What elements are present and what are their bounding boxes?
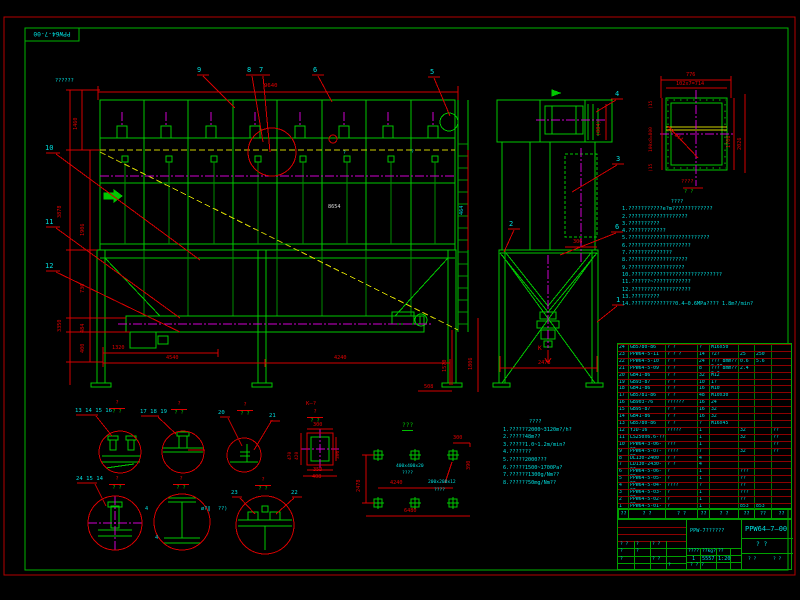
parts-header-cell: ? ? <box>709 510 738 518</box>
part-seq: 15 <box>618 407 628 413</box>
part-material: 32 <box>709 407 738 413</box>
notes-bottom-lines: 1.??????2000~3120m?/h?2.?????48m??3.????… <box>503 427 633 488</box>
part-material: M10x30 <box>709 393 738 399</box>
spec-line: 2.?????48m?? <box>503 434 633 442</box>
part-total-weight <box>754 449 771 455</box>
part-name: ? ? <box>665 414 697 420</box>
detail-label-13141516: 13 14 15 16 <box>75 409 112 415</box>
dim-1460: 1460 <box>74 118 79 131</box>
parts-list-row: 24 GB5780-86 ? ? ? M16x50 <box>618 344 791 351</box>
part-qty: 1 <box>697 476 709 482</box>
part-name: ?????? <box>665 400 697 406</box>
part-code: GB41-86 <box>628 414 665 420</box>
balloon-9: 9 <box>197 67 201 74</box>
part-code: PPW64-5-06-00 <box>628 469 665 475</box>
part-code: GB5780-86 <box>628 421 665 427</box>
dim-1806: 1806 <box>469 358 474 371</box>
note-line: 5.?????????????????????????? <box>622 235 792 242</box>
rev-cell: ? <box>620 558 623 563</box>
right-cell: ? ? <box>773 558 781 563</box>
dim-464: 464 <box>460 206 465 215</box>
foundation-title: ??? <box>402 423 413 431</box>
part-remark: ?? <box>771 442 791 448</box>
part-remark <box>771 421 791 427</box>
part-total-weight <box>754 456 771 462</box>
balloon-2: 2 <box>509 221 513 228</box>
parts-list-row: 21 PPW64-5-09 ? ? 8 ??? 8mm??0.3 2.4 <box>618 365 791 372</box>
part-material <box>709 435 738 441</box>
part-unit-weight <box>738 373 754 379</box>
dim-fp-6480: 6480 <box>404 509 417 514</box>
note-line: 11.??????~???????????? <box>622 279 792 286</box>
part-material: ?2? <box>709 352 738 358</box>
dim-508: 508 <box>424 385 433 390</box>
note-line: 14.??????????????0.4—0.6MPa???? 1.8m?/mi… <box>622 301 792 308</box>
detail-label-23: 23 <box>231 491 238 497</box>
parts-header-cell: ? ? <box>628 510 665 518</box>
balloon-6b: 6 <box>615 224 619 231</box>
part-name: ???? <box>665 483 697 489</box>
part-qty: 48 <box>697 393 709 399</box>
part-total-weight <box>754 386 771 392</box>
section-k-label: K—? <box>306 402 316 408</box>
part-code: PPW64-5-11 <box>628 352 665 358</box>
sheet-count: 1 <box>692 557 695 562</box>
part-name: ? ? <box>665 421 697 427</box>
part-qty: 10 <box>697 380 709 386</box>
section-mark-1: ?? ? <box>108 401 126 415</box>
parts-list-row: 20 GB41-86 ? ? 32 M12 <box>618 372 791 379</box>
part-remark <box>771 476 791 482</box>
balloon-11: 11 <box>45 219 53 226</box>
part-code: GB903-76 <box>628 400 665 406</box>
section-mark-4: ?? ? <box>108 477 126 491</box>
rev-cell: ? ? <box>620 543 628 548</box>
parts-list-row: 3 PPW64-5-03-00 ? 1 ??? <box>618 489 791 496</box>
part-name: ? ? <box>665 407 697 413</box>
part-seq: 5 <box>618 476 628 482</box>
scale-header: ?? <box>718 550 724 555</box>
balloon-3: 3 <box>616 156 620 163</box>
part-unit-weight <box>738 386 754 392</box>
part-unit-weight: 2.4 <box>738 366 754 372</box>
weld-mark-phi: ø?‖ <box>201 507 210 512</box>
part-name: ???? <box>665 449 697 455</box>
weld-mark-r: ??) <box>218 507 227 512</box>
cad-drawing-canvas: PPW64-7-00 ?????? 9640 1460 3878 3350 19… <box>0 0 800 600</box>
parts-list-row: 9 PPW64-5-07-00 ???? 7 32 ?? <box>618 448 791 455</box>
part-name: ? <box>665 469 697 475</box>
part-code: YJD-16 <box>628 428 665 434</box>
note-line: 1.???????????e?m????????????? <box>622 206 792 213</box>
part-qty: 8 <box>697 366 709 372</box>
part-unit-weight: 32 <box>738 449 754 455</box>
note-line: 3.?????????? <box>622 221 792 228</box>
part-remark <box>771 462 791 468</box>
dim-884: (884) <box>597 120 602 136</box>
part-code: PPW64-5-10 <box>628 359 665 365</box>
parts-list-row: 22 PPW64-5-10 ? ? 24 ??? 8mm??0.38 0.6 5… <box>618 358 791 365</box>
parts-list-row: 23 PPW64-5-11 ? ? ? 14 ?2? 25 250 <box>618 351 791 358</box>
drawing-number: PPW64—7—00 <box>745 526 787 533</box>
part-remark <box>771 366 791 372</box>
part-unit-weight <box>738 414 754 420</box>
dim-776: 776 <box>686 73 695 78</box>
part-seq: 23 <box>618 352 628 358</box>
part-qty: ? <box>697 483 709 489</box>
part-qty: 24 <box>697 359 709 365</box>
part-code: LS250x6.6-?????? <box>628 435 665 441</box>
part-code: DL130-2400 <box>628 456 665 462</box>
note-line: 4.???????????? <box>622 228 792 235</box>
part-qty: 4 <box>697 462 709 468</box>
part-qty: 7 <box>697 449 709 455</box>
part-seq: 12 <box>618 428 628 434</box>
part-total-weight <box>754 490 771 496</box>
part-remark <box>771 380 791 386</box>
part-remark <box>771 345 791 351</box>
part-total-weight <box>754 393 771 399</box>
part-material: 1? <box>709 380 738 386</box>
rev-cell: ? ? <box>652 543 660 548</box>
part-total-weight <box>754 428 771 434</box>
spec-line: 7.??????1300g/Nm?? <box>503 472 633 480</box>
balloon-10: 10 <box>45 145 53 152</box>
balloon-6: 6 <box>313 67 317 74</box>
spec-line: 6.?????1500~1700Pa? <box>503 465 633 473</box>
part-total-weight <box>754 407 771 413</box>
rev-cell: ? <box>636 550 639 555</box>
part-material: M10 <box>709 386 738 392</box>
mark-1: ? <box>343 152 346 157</box>
part-qty: 1 <box>697 428 709 434</box>
part-unit-weight: 0.6 <box>738 359 754 365</box>
part-name <box>665 435 697 441</box>
dim-400: 400 <box>81 344 86 353</box>
part-total-weight <box>754 366 771 372</box>
part-seq: 24 <box>618 345 628 351</box>
part-code: GB41-86 <box>628 373 665 379</box>
note-line: 9.?????????????????? <box>622 265 792 272</box>
part-remark <box>771 497 791 503</box>
rev-cell: ? <box>668 564 671 569</box>
parts-list-row: 14 GB41-86 ? ? 16 32 <box>618 413 791 420</box>
part-seq: 10 <box>618 442 628 448</box>
part-name: ? ? <box>665 456 697 462</box>
part-seq: 11 <box>618 435 628 441</box>
main-top-label: ?????? <box>55 79 74 84</box>
spec-line: 5.?????2000??? <box>503 457 633 465</box>
dim-1570: 1570 <box>443 360 448 373</box>
part-name: ? <box>665 490 697 496</box>
part-remark <box>771 352 791 358</box>
part-material: 24 <box>709 400 738 406</box>
dim-4540: 4540 <box>166 356 179 361</box>
parts-header-cell: ?? <box>738 510 754 518</box>
part-unit-weight: ??? <box>738 469 754 475</box>
section-mark-5: ?? ? <box>172 477 190 491</box>
part-qty: 4 <box>697 456 709 462</box>
part-material <box>709 469 738 475</box>
spec-line: 1.??????2000~3120m?/h? <box>503 427 633 435</box>
part-code: GB5780-86 <box>628 345 665 351</box>
dim-fp-2478: 2478 <box>357 480 362 493</box>
part-material: M16x50 <box>709 345 738 351</box>
part-qty: ? <box>697 421 709 427</box>
part-total-weight: 5.6 <box>754 359 771 365</box>
weld-mark-4: 4 <box>145 507 148 512</box>
section-mark-k: ?? ? <box>306 410 324 424</box>
part-seq: 4 <box>618 483 628 489</box>
part-seq: 2 <box>618 497 628 503</box>
part-code: PPW64-5-02-00 <box>628 497 665 503</box>
part-unit-weight: 25 <box>738 352 754 358</box>
part-name: ? ? <box>665 380 697 386</box>
part-qty: 16 <box>697 386 709 392</box>
dim-8654: 8654 <box>328 205 341 210</box>
rev-cell: ? <box>636 543 639 548</box>
part-seq: 14 <box>618 414 628 420</box>
section-mark-3: ?? ? <box>236 403 254 417</box>
flange-caption-sub: ? ? <box>684 190 693 195</box>
dim-3878: 3878 <box>58 206 63 219</box>
mark-2: ? <box>411 151 414 156</box>
parts-header-cell: ? ? <box>665 510 697 518</box>
balloon-8: 8 <box>247 67 251 74</box>
spec-line: 8.??????50mg/Nm?? <box>503 480 633 488</box>
part-qty: 16 <box>697 407 709 413</box>
part-name: ? <box>665 476 697 482</box>
note-line: 7.?????????????? <box>622 250 792 257</box>
parts-list-row: 17 GB5781-86 ? ? 48 M10x30 <box>618 392 791 399</box>
part-remark <box>771 414 791 420</box>
plate-label-2b: ???? <box>434 489 445 494</box>
dim-ks-306: 306 <box>337 451 342 459</box>
detail-label-171819: 17 18 19 <box>140 410 167 416</box>
dim-100x8: 100x8=800 <box>650 127 655 152</box>
notes-right-lines: 1.???????????e?m?????????????2.?????????… <box>622 206 792 308</box>
part-unit-weight: 32 <box>738 428 754 434</box>
part-material: ??? 8mm??0.3 <box>709 366 738 372</box>
note-line: 8.??????????????????? <box>622 257 792 264</box>
drawing-number-sub: ? ? <box>756 542 767 548</box>
part-unit-weight <box>738 393 754 399</box>
k-arrow-label: K <box>538 346 542 352</box>
part-total-weight <box>754 483 771 489</box>
main-elevation <box>91 100 468 387</box>
parts-header-cell: ?? <box>697 510 709 518</box>
part-code: GB95-87 <box>628 407 665 413</box>
notes-bottom: ???? 1.??????2000~3120m?/h?2.?????48m??3… <box>503 419 633 487</box>
part-total-weight <box>754 373 771 379</box>
balloon-4: 4 <box>615 91 619 98</box>
note-line: 13.????????? <box>622 294 792 301</box>
part-remark: ?? <box>771 428 791 434</box>
part-code: GB41-86 <box>628 386 665 392</box>
dim-e2: (15 <box>650 164 655 172</box>
parts-header-cell: ?? <box>618 510 628 518</box>
dim-fp-300: 300 <box>453 436 462 441</box>
note-line: 12.??????????????????? <box>622 287 792 294</box>
part-qty: 1 <box>697 442 709 448</box>
dim-1906: 1906 <box>81 224 86 237</box>
part-seq: 9 <box>618 449 628 455</box>
parts-list-row: 12 YJD-16 ????? 1 32 ?? <box>618 427 791 434</box>
note-line: 6.???????????????????? <box>622 243 792 250</box>
title-footer-cells: ? ? ? <box>690 564 704 569</box>
part-unit-weight <box>738 456 754 462</box>
plate-label-1b: ???? <box>402 472 413 477</box>
spec-line: 3.?????1.0~1.2m/min? <box>503 442 633 450</box>
part-remark <box>771 359 791 365</box>
part-seq: 3 <box>618 490 628 496</box>
part-qty: 14 <box>697 352 709 358</box>
part-unit-weight <box>738 462 754 468</box>
dim-484: 484 <box>81 324 86 333</box>
dim-9640: 9640 <box>264 84 277 90</box>
balloon-12: 12 <box>45 263 53 270</box>
part-unit-weight: ?? <box>738 497 754 503</box>
part-unit-weight: ?? <box>738 483 754 489</box>
part-material <box>709 462 738 468</box>
parts-list-row: 5 PPW64-5-05-00 ? 1 ?? <box>618 475 791 482</box>
part-remark <box>771 400 791 406</box>
part-qty: 1 <box>697 469 709 475</box>
part-remark <box>771 490 791 496</box>
parts-list-row: 13 GB5780-86 ? ? ? M16x45 <box>618 420 791 427</box>
part-remark <box>771 469 791 475</box>
part-material <box>709 456 738 462</box>
part-qty: ? <box>697 345 709 351</box>
part-unit-weight <box>738 345 754 351</box>
part-seq: 13 <box>618 421 628 427</box>
part-code: GB5781-86 <box>628 393 665 399</box>
dim-1706: 1706 <box>727 136 732 149</box>
part-material: M12 <box>709 373 738 379</box>
part-seq: 19 <box>618 380 628 386</box>
parts-list-row: 2 PPW64-5-02-00 ? 1 ?? <box>618 496 791 503</box>
dim-4240: 4240 <box>334 356 347 361</box>
spec-line: 4.??????? <box>503 449 633 457</box>
part-code: PPW64-5-09 <box>628 366 665 372</box>
part-total-weight <box>754 435 771 441</box>
parts-list-row: 7 LD130-2430-0? ? ? 4 <box>618 461 791 468</box>
part-code: PPW64-5-07-00 <box>628 449 665 455</box>
parts-list-row: 8 DL130-2400 ? ? 4 <box>618 455 791 462</box>
balloon-7: 7 <box>259 67 263 74</box>
section-mark-2: ?? ? <box>170 402 188 416</box>
dim-fp-390: 390 <box>467 461 472 470</box>
part-total-weight <box>754 476 771 482</box>
part-seq: 16 <box>618 400 628 406</box>
part-material <box>709 490 738 496</box>
note-line: 2.??????????????????? <box>622 214 792 221</box>
dim-2478: 2478 <box>538 361 551 366</box>
dim-ks-350: 350 <box>313 468 322 473</box>
part-remark <box>771 483 791 489</box>
part-remark <box>771 456 791 462</box>
part-name: ? ? <box>665 345 697 351</box>
part-qty: 16 <box>697 414 709 420</box>
note-line: 10.????????????????????????????? <box>622 272 792 279</box>
dim-2026: 2026 <box>738 138 743 151</box>
part-unit-weight: ?? <box>738 476 754 482</box>
title-block: ? ? ? ? ? ? ? ? ? ? ? PPW-7?????? ???? ?… <box>617 519 792 570</box>
part-remark <box>771 373 791 379</box>
parts-list-row: 16 GB903-76 ?????? 16 24 <box>618 399 791 406</box>
side-elevation <box>493 90 612 387</box>
balloon-5: 5 <box>430 69 434 76</box>
part-qty: 1 <box>697 490 709 496</box>
part-unit-weight <box>738 407 754 413</box>
balloon-1: 1 <box>616 297 620 304</box>
part-qty: 32 <box>697 373 709 379</box>
part-remark: ?? <box>771 449 791 455</box>
parts-list-row: 10 PPW64-3-06-00 ??? 1 ?? <box>618 441 791 448</box>
part-name: ??? <box>665 442 697 448</box>
part-material <box>709 476 738 482</box>
part-qty: 1 <box>697 497 709 503</box>
drawing-name: PPW-7?????? <box>690 529 724 534</box>
part-unit-weight: 32 <box>738 435 754 441</box>
detail-label-21: 21 <box>269 414 276 420</box>
parts-header-cell: ?? <box>771 510 791 518</box>
weight-header: ???? <box>688 550 699 555</box>
part-total-weight <box>754 469 771 475</box>
part-seq: 8 <box>618 456 628 462</box>
part-unit-weight <box>738 421 754 427</box>
part-name: ? ? <box>665 386 697 392</box>
parts-list-row: 19 GB93-87 ? ? 10 1? <box>618 379 791 386</box>
part-material: ??? 8mm??0.38 <box>709 359 738 365</box>
parts-list-row: 18 GB41-86 ? ? 16 M10 <box>618 385 791 392</box>
part-name: ? ? ? <box>665 352 697 358</box>
dim-e1: (15 <box>650 101 655 109</box>
part-material: 32 <box>709 414 738 420</box>
flange-caption: ???? <box>681 180 694 185</box>
part-seq: 18 <box>618 386 628 392</box>
parts-header-cell: ?? <box>754 510 771 518</box>
plate-label-2: 200x200x12 <box>428 481 456 486</box>
part-total-weight <box>754 345 771 351</box>
part-unit-weight <box>738 442 754 448</box>
part-total-weight <box>754 442 771 448</box>
dim-306: 306 <box>573 240 582 245</box>
part-seq: 21 <box>618 366 628 372</box>
part-material <box>709 497 738 503</box>
part-name: ? <box>665 497 697 503</box>
part-material <box>709 442 738 448</box>
dim-730: 730 <box>81 284 86 293</box>
detail-label-20: 20 <box>218 411 225 417</box>
notes-right-header: ???? <box>622 199 732 206</box>
part-remark <box>771 386 791 392</box>
part-material: M16x45 <box>709 421 738 427</box>
weight-value: 5557 <box>702 557 715 562</box>
part-material <box>709 428 738 434</box>
part-unit-weight <box>738 400 754 406</box>
parts-list-row: 15 GB95-87 ? ? 16 32 <box>618 406 791 413</box>
part-remark <box>771 407 791 413</box>
part-code: PPW64-3-06-00 <box>628 442 665 448</box>
part-total-weight <box>754 380 771 386</box>
part-seq: 6 <box>618 469 628 475</box>
plate-label-1: 400x400x20 <box>396 465 424 470</box>
part-name: ? ? <box>665 393 697 399</box>
part-name: ????? <box>665 428 697 434</box>
part-seq: 7 <box>618 462 628 468</box>
part-code: GB93-87 <box>628 380 665 386</box>
